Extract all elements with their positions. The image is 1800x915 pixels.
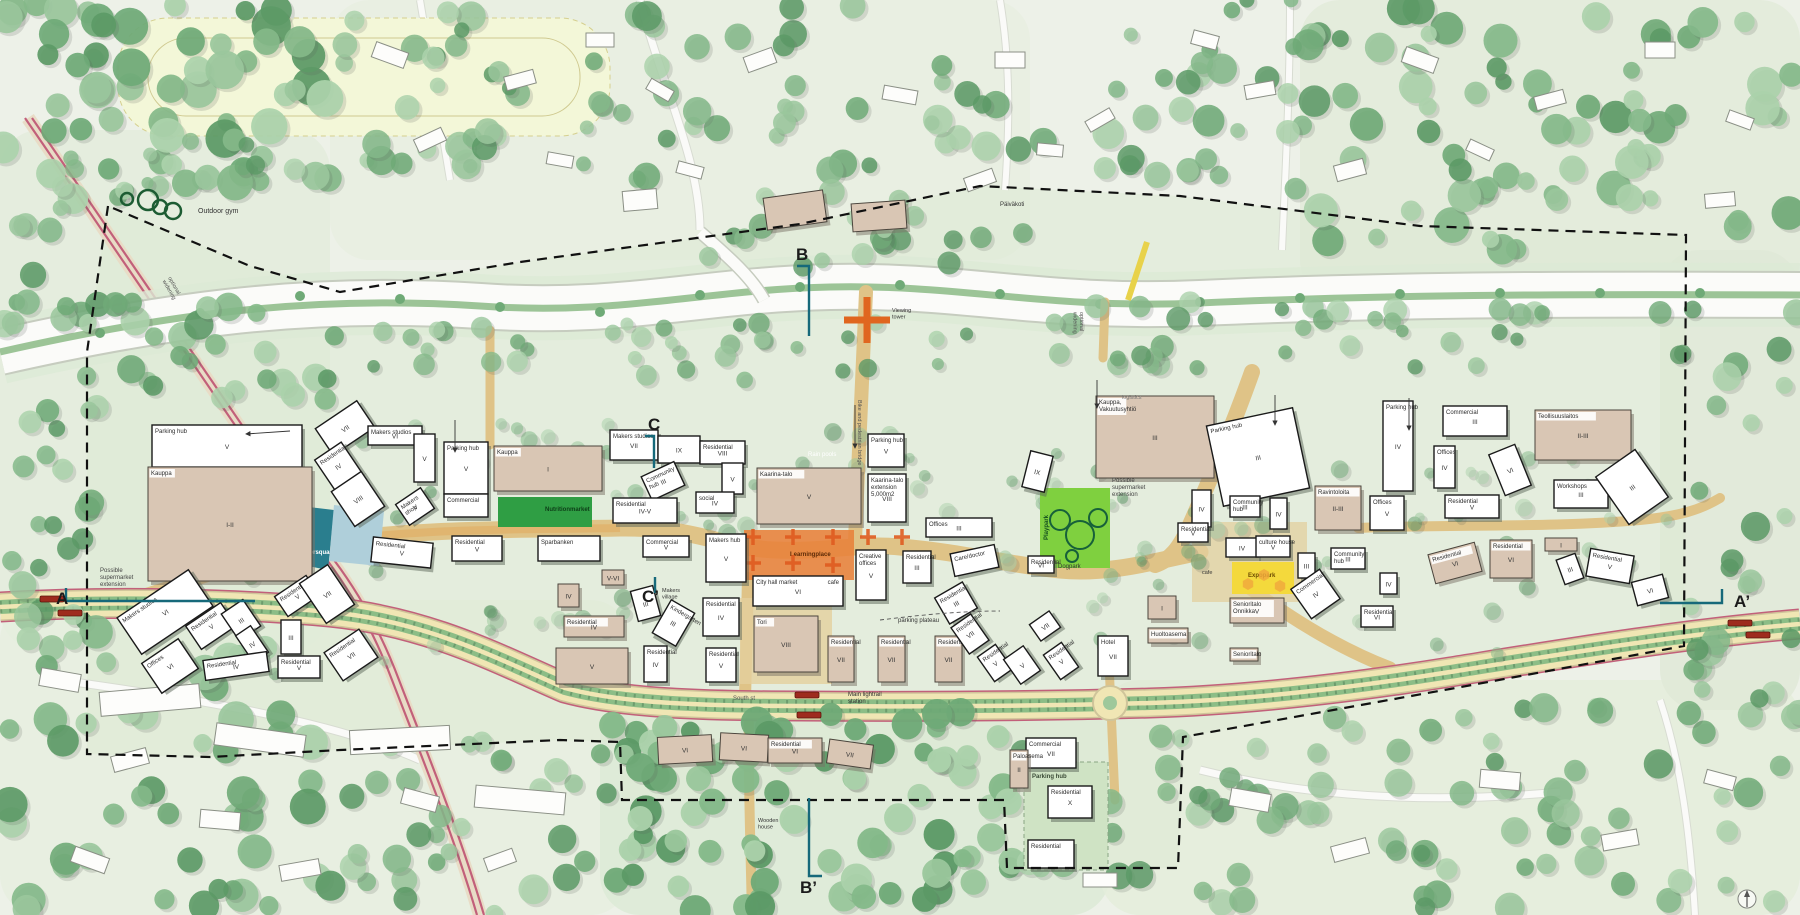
outskirt-house bbox=[199, 809, 240, 830]
label-line: village bbox=[662, 595, 678, 601]
building-kaarina-talo-extension-5-000m2: Kaarina-taloextension5,000m2VIII bbox=[868, 474, 909, 526]
building-floors: I bbox=[547, 467, 549, 474]
tree bbox=[1516, 858, 1534, 876]
median-tree bbox=[1495, 288, 1505, 298]
label-line: optional bbox=[1078, 312, 1084, 331]
area-label-playpark: Playpark bbox=[1044, 514, 1050, 540]
building-floors: III bbox=[914, 565, 920, 572]
tree bbox=[1304, 193, 1338, 227]
tree bbox=[1716, 820, 1738, 842]
building-name: Residential bbox=[647, 650, 677, 656]
building-residential: ResidentialIV-V bbox=[613, 498, 680, 527]
tree bbox=[0, 719, 19, 739]
label-line: Parking hub bbox=[1386, 405, 1419, 411]
label-line: V bbox=[724, 556, 729, 563]
tree bbox=[1421, 26, 1437, 42]
tree bbox=[892, 709, 923, 740]
section-letter-C: C bbox=[648, 415, 660, 434]
building-residential: ResidentialV bbox=[706, 648, 739, 686]
tree bbox=[1430, 638, 1444, 652]
label-line: V bbox=[225, 444, 230, 451]
label-line: V bbox=[464, 466, 469, 473]
tree bbox=[1194, 882, 1212, 900]
building-floors: V bbox=[422, 456, 427, 463]
building-residential: ResidentialIII bbox=[903, 551, 936, 587]
building-community-hub: CommunityhubIII bbox=[1230, 496, 1263, 521]
label-line: Residential bbox=[706, 602, 736, 608]
label-line: Residential bbox=[1051, 790, 1081, 796]
tree bbox=[596, 783, 616, 803]
label-line: Kaarina-talo bbox=[871, 478, 904, 484]
tree bbox=[429, 322, 445, 338]
label-line: Offices bbox=[1373, 500, 1392, 506]
area-label-learningplace: Learningplace bbox=[790, 552, 831, 558]
tree bbox=[63, 631, 82, 650]
building-floors: VI bbox=[1508, 557, 1514, 564]
tree bbox=[1413, 845, 1430, 862]
tree bbox=[1234, 521, 1248, 535]
building-residential: ResidentialIV bbox=[564, 616, 627, 641]
tree bbox=[1126, 861, 1153, 888]
tree bbox=[1110, 350, 1126, 366]
tree bbox=[72, 528, 93, 549]
building-floors: VI bbox=[795, 589, 801, 596]
tree bbox=[628, 351, 642, 365]
building-floors: III bbox=[1242, 505, 1248, 512]
building-block: IV bbox=[558, 584, 582, 611]
tree bbox=[1299, 85, 1331, 117]
tree bbox=[1308, 772, 1334, 798]
north-compass bbox=[1738, 890, 1756, 908]
outskirt-house bbox=[1083, 873, 1117, 887]
building-floors: III bbox=[1345, 557, 1351, 564]
label-line: IV-V bbox=[639, 509, 652, 516]
building-name: Commercial bbox=[1446, 410, 1478, 416]
tree bbox=[9, 571, 37, 599]
section-letter-A2: A’ bbox=[1734, 592, 1750, 611]
tree bbox=[1368, 229, 1385, 246]
tree bbox=[668, 876, 689, 897]
median-tree bbox=[495, 302, 505, 312]
building-floors: III bbox=[1304, 564, 1310, 571]
tree bbox=[422, 46, 445, 69]
tree bbox=[677, 360, 695, 378]
tree bbox=[655, 320, 672, 337]
label-line: Possible bbox=[1112, 478, 1135, 484]
building-name: Residential bbox=[1493, 544, 1523, 550]
label-line: VI bbox=[1508, 557, 1514, 564]
label-line: widening bbox=[1072, 311, 1078, 334]
building-residential: ResidentialIV bbox=[703, 598, 742, 640]
area-label-parking-hub-south: Parking hub bbox=[1032, 774, 1067, 780]
label-line: Parking hub bbox=[155, 429, 188, 435]
tree bbox=[927, 749, 951, 773]
map-annotation: optionalwidening bbox=[1072, 311, 1085, 334]
tree bbox=[1275, 302, 1289, 316]
tree bbox=[1644, 749, 1673, 778]
building-name: Residential bbox=[709, 652, 739, 658]
tree bbox=[510, 334, 525, 349]
tree bbox=[80, 402, 98, 420]
building-residential: ResidentialV bbox=[1178, 523, 1211, 546]
tree bbox=[1665, 104, 1687, 126]
tree bbox=[922, 859, 951, 888]
tree bbox=[1307, 743, 1327, 763]
tree bbox=[176, 27, 205, 56]
tree bbox=[1419, 97, 1437, 115]
tree bbox=[1006, 136, 1031, 161]
map-annotation: Päiväkoti bbox=[1000, 202, 1024, 208]
building-floors: IV bbox=[565, 594, 572, 601]
building-floors: V bbox=[719, 663, 724, 670]
tree bbox=[39, 19, 69, 49]
building-block: I bbox=[1545, 538, 1580, 555]
median-tree bbox=[1395, 289, 1405, 299]
tree bbox=[1207, 53, 1237, 83]
tree bbox=[1552, 799, 1580, 827]
label-line: Commercial bbox=[1029, 742, 1061, 748]
tree bbox=[973, 95, 992, 114]
tree bbox=[1677, 701, 1701, 725]
label-line: Playpark bbox=[1044, 514, 1050, 540]
label-line: III bbox=[1578, 492, 1584, 499]
tree bbox=[81, 73, 112, 104]
label-line: V bbox=[1385, 511, 1390, 518]
tree bbox=[290, 789, 326, 825]
tree bbox=[1419, 719, 1442, 742]
tree bbox=[1576, 95, 1600, 119]
building-floors: IV bbox=[1385, 582, 1392, 589]
building-offices: OfficesIV bbox=[1434, 446, 1458, 492]
building-name: Parking hub bbox=[1386, 405, 1419, 411]
building-residential: ResidentialX bbox=[1048, 786, 1095, 822]
tree bbox=[1166, 307, 1190, 331]
label-line: house bbox=[758, 825, 773, 831]
tree bbox=[684, 34, 710, 60]
tree bbox=[633, 163, 660, 190]
tree bbox=[475, 118, 501, 144]
building-kauppa: KauppaI bbox=[494, 446, 605, 495]
tree bbox=[954, 849, 972, 867]
building-kauppa: KauppaI-II bbox=[148, 467, 315, 585]
tree bbox=[1169, 97, 1194, 122]
tree bbox=[37, 218, 62, 243]
building-name: Hotel bbox=[1101, 640, 1115, 646]
median-tree bbox=[695, 290, 705, 300]
tree bbox=[960, 328, 973, 341]
tree bbox=[98, 158, 119, 179]
label-line: Residential bbox=[1181, 527, 1211, 533]
tree bbox=[1475, 470, 1489, 484]
building-offices: OfficesIII bbox=[926, 518, 995, 541]
tree bbox=[1120, 155, 1140, 175]
tree bbox=[1501, 817, 1528, 844]
tree bbox=[259, 896, 278, 915]
label-line: Kaarina-talo bbox=[760, 472, 793, 478]
tree bbox=[1331, 460, 1349, 478]
tree bbox=[817, 849, 841, 873]
label-line: Outdoor gym bbox=[198, 208, 239, 215]
tree bbox=[122, 293, 142, 313]
tree bbox=[852, 243, 874, 265]
tree bbox=[534, 616, 547, 629]
label-line: IX bbox=[676, 448, 683, 455]
tree bbox=[1396, 325, 1409, 338]
building-huoltoasema: Huoltoasema bbox=[1148, 628, 1191, 647]
label-line: Residential bbox=[881, 640, 911, 646]
building-name: Residential bbox=[881, 640, 911, 646]
tree bbox=[13, 456, 35, 478]
tree bbox=[452, 818, 470, 836]
building-name: Residential bbox=[1181, 527, 1211, 533]
building-name: Offices bbox=[929, 522, 948, 528]
label-line: II bbox=[1017, 767, 1021, 774]
tree bbox=[193, 734, 211, 752]
tree bbox=[835, 363, 850, 378]
label-line: VI bbox=[1038, 563, 1044, 570]
tree bbox=[859, 359, 877, 377]
label-line: III bbox=[956, 526, 962, 533]
tree bbox=[683, 97, 711, 125]
tree bbox=[1686, 638, 1708, 660]
tree bbox=[1219, 767, 1240, 788]
map-annotation: parking plateau bbox=[898, 618, 939, 624]
building-ravintoloita: RavintoloitaII-III bbox=[1315, 486, 1364, 534]
label-line: IV bbox=[1275, 512, 1282, 519]
tree bbox=[703, 520, 714, 531]
tree bbox=[922, 699, 952, 729]
label-line: cafe bbox=[828, 580, 840, 586]
map-annotation: Bike and pedestrian bridge bbox=[856, 400, 862, 465]
building-floors: V bbox=[297, 665, 302, 672]
label-line: extension bbox=[1112, 492, 1138, 498]
building-floors: V bbox=[730, 477, 735, 484]
tree bbox=[362, 130, 390, 158]
building-floors: VI bbox=[741, 745, 748, 752]
tree bbox=[157, 75, 185, 103]
tree bbox=[879, 882, 902, 905]
median-tree bbox=[595, 307, 605, 317]
tree bbox=[373, 322, 392, 341]
tree bbox=[41, 118, 66, 143]
building-floors: VII bbox=[845, 751, 854, 759]
label-line: Hotel bbox=[1101, 640, 1115, 646]
label-line: VI bbox=[792, 749, 798, 756]
tree bbox=[919, 470, 931, 482]
tree bbox=[591, 744, 610, 763]
label-line: VII bbox=[945, 657, 953, 664]
label-line: A’ bbox=[1734, 592, 1750, 611]
label-line: Makers hub bbox=[709, 538, 741, 544]
tree bbox=[1690, 482, 1708, 500]
building-name: Commercial bbox=[1029, 742, 1061, 748]
tree bbox=[1776, 377, 1793, 394]
tree bbox=[236, 1, 256, 21]
tree bbox=[1611, 872, 1635, 896]
label-line: Onnikka bbox=[1233, 609, 1256, 615]
building-name: Offices bbox=[1437, 450, 1456, 456]
tree bbox=[1587, 698, 1613, 724]
tree bbox=[484, 605, 497, 618]
label-line: South st bbox=[733, 696, 755, 702]
tree bbox=[507, 351, 528, 372]
outskirt-house bbox=[995, 52, 1025, 68]
tree bbox=[2, 551, 21, 570]
label-line: C bbox=[648, 415, 660, 434]
tree bbox=[1545, 188, 1568, 211]
label-line: VI bbox=[795, 589, 801, 596]
tree bbox=[195, 165, 220, 190]
label-line: parking plateau bbox=[898, 618, 939, 624]
tree bbox=[333, 32, 358, 57]
tree bbox=[1198, 312, 1214, 328]
tree bbox=[1776, 508, 1792, 524]
tree bbox=[1230, 123, 1245, 138]
label-line: Huoltoasema bbox=[1151, 632, 1187, 638]
section-letter-A: A bbox=[56, 589, 68, 608]
building-floors: V bbox=[475, 547, 480, 554]
tree bbox=[1401, 200, 1421, 220]
label-line: III bbox=[288, 635, 294, 642]
tree bbox=[285, 79, 306, 100]
tree bbox=[1227, 863, 1251, 887]
tree bbox=[413, 354, 435, 376]
tree bbox=[1224, 2, 1240, 18]
building-residential: ResidentialVI bbox=[768, 738, 825, 767]
label-line: IV bbox=[591, 625, 598, 632]
label-line: V bbox=[807, 494, 812, 501]
tree bbox=[733, 318, 747, 332]
tree bbox=[1086, 600, 1099, 613]
tree bbox=[1486, 753, 1504, 771]
tree bbox=[754, 331, 771, 348]
label-line: VII bbox=[630, 443, 638, 450]
label-line: B bbox=[796, 245, 808, 264]
tree bbox=[1157, 783, 1175, 801]
label-line: I bbox=[1560, 543, 1562, 550]
label-line: VI bbox=[682, 747, 689, 754]
building-name: Sparbanken bbox=[541, 540, 573, 546]
tree bbox=[1534, 305, 1550, 321]
outskirt-house bbox=[586, 33, 614, 47]
tree bbox=[995, 788, 1022, 815]
tree bbox=[1191, 554, 1207, 570]
map-annotation: Outdoor gym bbox=[198, 208, 239, 215]
tree bbox=[383, 845, 411, 873]
building-residential: ResidentialVI bbox=[1490, 540, 1535, 582]
label-line: Residential bbox=[455, 540, 485, 546]
tree bbox=[403, 329, 420, 346]
tree bbox=[1559, 156, 1585, 182]
label-line: IV bbox=[1198, 507, 1205, 514]
building-name: Workshops bbox=[1557, 484, 1587, 490]
tree bbox=[14, 603, 42, 631]
tree bbox=[1615, 145, 1649, 179]
tree bbox=[306, 80, 343, 117]
tram-vehicle bbox=[58, 610, 82, 616]
tree bbox=[1332, 83, 1358, 109]
label-line: extension bbox=[100, 582, 126, 588]
label-line: Vakuutusyhtiö bbox=[1099, 407, 1137, 413]
label-line: Parking hub bbox=[871, 438, 904, 444]
tree bbox=[205, 334, 226, 355]
tree bbox=[1487, 57, 1507, 77]
tree bbox=[9, 215, 30, 236]
tree bbox=[344, 11, 364, 31]
tree bbox=[391, 153, 413, 175]
tree bbox=[1341, 720, 1363, 742]
tree bbox=[495, 418, 507, 430]
tree bbox=[441, 843, 458, 860]
tree bbox=[1741, 512, 1770, 541]
label-line: V-VI bbox=[607, 576, 619, 583]
label-line: Possible bbox=[100, 568, 123, 574]
building-floors: V-VI bbox=[607, 576, 619, 583]
tree bbox=[170, 346, 189, 365]
label-line: Wooden bbox=[758, 818, 778, 824]
building-city-hall-market: City hall marketcafeVI bbox=[753, 576, 846, 610]
tree bbox=[602, 418, 615, 431]
tree bbox=[1517, 172, 1535, 190]
tree bbox=[961, 869, 986, 894]
tree bbox=[1455, 709, 1472, 726]
building-name: Commercial bbox=[447, 498, 479, 504]
tree bbox=[644, 54, 670, 80]
tree bbox=[1721, 549, 1744, 572]
tree bbox=[1103, 568, 1118, 583]
map-annotation: cafe bbox=[1202, 570, 1212, 576]
tree bbox=[91, 13, 116, 38]
label-line: V bbox=[1271, 545, 1276, 552]
tree bbox=[1782, 629, 1800, 648]
tree bbox=[1529, 693, 1558, 722]
building-floors: IV bbox=[1441, 465, 1448, 472]
tree bbox=[1660, 514, 1672, 526]
building-name: culture house bbox=[1259, 540, 1296, 546]
tree bbox=[437, 1, 459, 23]
building-floors: VII bbox=[1109, 654, 1117, 661]
map-annotation: Dogpark bbox=[1058, 564, 1082, 570]
label-line: Offices bbox=[929, 522, 948, 528]
tree bbox=[227, 776, 260, 809]
label-line: I bbox=[1161, 606, 1163, 613]
tree bbox=[115, 182, 133, 200]
label-line: V bbox=[590, 664, 595, 671]
label-line: IV bbox=[712, 501, 719, 508]
tree bbox=[1628, 109, 1651, 132]
tree bbox=[553, 864, 580, 891]
tree bbox=[511, 422, 523, 434]
tree bbox=[1491, 647, 1504, 660]
label-line: supermarket bbox=[100, 575, 134, 581]
tram-vehicle bbox=[1746, 632, 1770, 638]
tree bbox=[1417, 120, 1440, 143]
tree bbox=[430, 78, 446, 94]
tree bbox=[1295, 320, 1311, 336]
building-residential: ResidentialVII bbox=[878, 636, 911, 686]
label-line: Residential bbox=[709, 652, 739, 658]
label-line: station bbox=[848, 699, 866, 705]
building-name: Kauppa bbox=[497, 450, 518, 456]
tree bbox=[78, 490, 104, 516]
label-line: III bbox=[1242, 505, 1248, 512]
label-line: Kauppa bbox=[497, 450, 518, 456]
label-line: V bbox=[297, 665, 302, 672]
tree bbox=[1623, 62, 1640, 79]
tree bbox=[1189, 786, 1207, 804]
building-floors: VIII bbox=[718, 451, 728, 458]
tree bbox=[1604, 512, 1616, 524]
